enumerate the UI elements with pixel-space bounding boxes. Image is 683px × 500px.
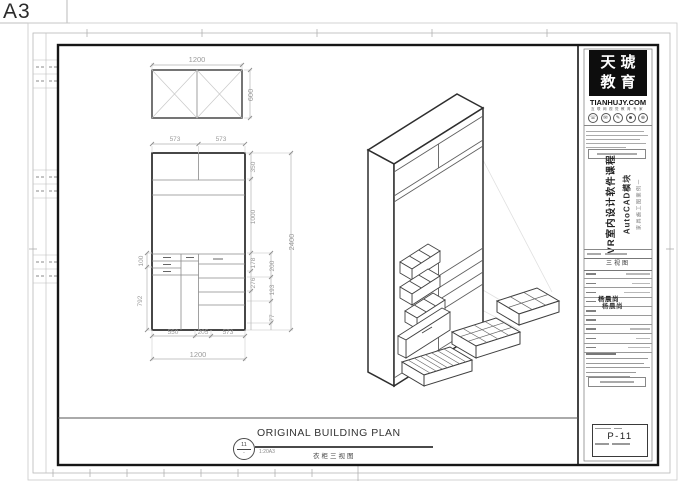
detail-bubble: 11 - [233, 438, 255, 460]
contact-icon-row: ☏ ✉ ✎ ☻ ⊕ [584, 113, 652, 123]
phone-icon: ☏ [588, 113, 598, 123]
signature-stamps: 杨晨尚 杨晨尚 [598, 293, 638, 317]
front-elevation [152, 153, 245, 330]
plan-view [152, 70, 242, 118]
dimension-label: 792 [137, 295, 144, 306]
title-block: 天琥 教育 TIANHUJY.COM 互联网视觉教育专家 ☏ ✉ ✎ ☻ ⊕ V… [578, 45, 658, 465]
dimension-label: 1000 [250, 209, 257, 224]
view-title-underline [255, 446, 433, 448]
detail-bubble-number: 11 [241, 442, 247, 448]
form-row [584, 279, 652, 288]
micro-text-line [586, 367, 650, 368]
micro-text-line [586, 372, 636, 373]
dimension-label: 350 [250, 161, 257, 172]
brand-logo: 天琥 教育 [589, 50, 647, 96]
person-icon: ☻ [626, 113, 636, 123]
signature-stamp: 杨晨尚 [602, 300, 623, 310]
brand-website: TIANHUJY.COM [584, 98, 652, 107]
form-row [584, 334, 652, 343]
micro-text-line [586, 131, 644, 133]
sheet-number-label-row [595, 428, 645, 429]
certificate-box [588, 149, 646, 159]
micro-text-line [587, 253, 601, 255]
dimension-label: 1200 [189, 55, 206, 64]
view-scale: 1:20A3 [259, 449, 275, 455]
divider [584, 125, 652, 126]
sheet-border-frame [0, 0, 677, 481]
dimension-label: 573 [223, 329, 234, 336]
micro-text-line [595, 428, 611, 429]
form-row [584, 325, 652, 334]
dimension-label: 276 [250, 277, 257, 288]
dimension-label: 193 [269, 284, 276, 295]
dimension-label: 1200 [190, 350, 207, 359]
sheet-number-box: P-11 [592, 424, 648, 457]
a3-drawing-sheet: { "sheet": { "format_label": "A3" }, "pl… [0, 0, 683, 500]
micro-text-line [586, 358, 648, 359]
micro-text-line [586, 139, 640, 141]
dimension-label: 550 [168, 329, 179, 336]
detail-bubble-scale: - [243, 451, 245, 456]
company-info-lines [586, 128, 650, 151]
course-module: AutoCAD模块 [622, 174, 633, 235]
dimension-label: 600 [246, 89, 255, 102]
dimension-label: 200 [269, 260, 276, 271]
brand-logo-row1: 天琥 [595, 53, 640, 73]
tray-grid-6 [497, 288, 559, 325]
dimension-label: 77 [269, 314, 276, 322]
sheet-number: P-11 [595, 431, 645, 442]
brand-logo-row2: 教育 [595, 73, 640, 93]
course-title: VR室内设计软件课程 [603, 154, 617, 253]
sheet-scale-label-row [595, 443, 645, 444]
micro-text-line [586, 135, 648, 137]
brand-tagline: 互联网视觉教育专家 [584, 107, 652, 112]
divider [584, 249, 652, 250]
dimension-label: 178 [250, 257, 257, 268]
micro-text-line [600, 381, 634, 383]
globe-icon: ⊕ [638, 113, 648, 123]
dimension-label: 205 [198, 329, 209, 336]
dimension-label: 573 [216, 136, 227, 143]
approval-box [588, 377, 646, 387]
form-row [584, 316, 652, 325]
view-title: ORIGINAL BUILDING PLAN [257, 427, 401, 439]
dimension-label: 100 [138, 255, 145, 266]
micro-text-line [595, 443, 609, 444]
course-case: 家具施工图案例一 [636, 178, 643, 230]
view-caption: 衣柜三视图 [313, 450, 356, 460]
micro-text-line [586, 143, 646, 145]
dimension-label: 573 [170, 136, 181, 143]
micro-text-line [586, 353, 616, 354]
pen-icon: ✎ [613, 113, 623, 123]
micro-text-line [614, 428, 622, 429]
sheet-format-label: A3 [3, 0, 31, 24]
micro-text-line [612, 443, 630, 444]
drawing-name-label-row [584, 251, 655, 257]
mail-icon: ✉ [601, 113, 611, 123]
micro-text-line [605, 253, 627, 255]
form-row [584, 270, 652, 279]
dimension-label: 2400 [287, 234, 296, 251]
micro-text-line [586, 363, 644, 364]
